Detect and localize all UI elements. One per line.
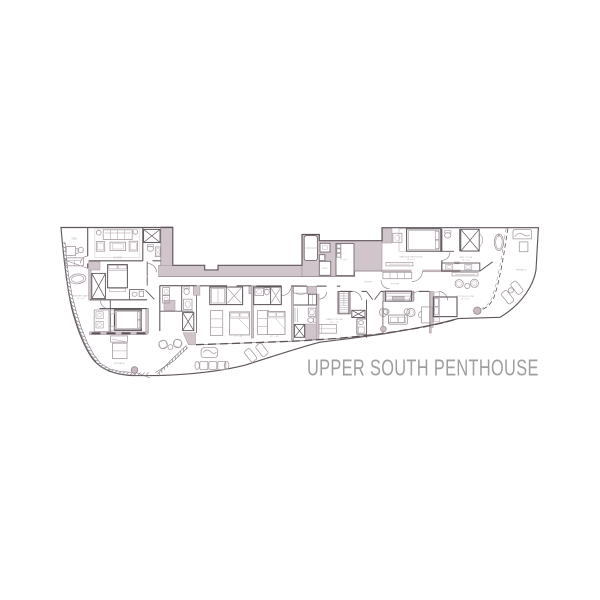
svg-text:DEN: DEN: [72, 238, 78, 241]
svg-text:TERRACE: TERRACE: [113, 362, 125, 365]
svg-text:MASTER BATH: MASTER BATH: [73, 295, 90, 298]
svg-text:LIVING: LIVING: [113, 256, 122, 259]
svg-text:KIT: KIT: [343, 260, 347, 262]
svg-text:UPPER SOUTH PENTHOUSE: UPPER SOUTH PENTHOUSE: [307, 356, 539, 381]
svg-text:12' x 13': 12' x 13': [234, 336, 244, 338]
svg-text:12' x 11': 12' x 11': [461, 299, 470, 301]
svg-text:MASTER BEDROOM: MASTER BEDROOM: [400, 256, 423, 259]
svg-text:ENTRY: ENTRY: [364, 282, 373, 284]
svg-text:SRVC: SRVC: [322, 268, 328, 270]
svg-text:16' x 13': 16' x 13': [330, 322, 339, 324]
svg-text:18' x 14': 18' x 14': [407, 259, 416, 261]
svg-text:FOYER: FOYER: [391, 283, 400, 285]
svg-text:FAMILY ROOM: FAMILY ROOM: [326, 318, 343, 321]
svg-text:12' x 10': 12' x 10': [77, 298, 86, 300]
svg-text:TERRACE: TERRACE: [515, 268, 527, 271]
svg-text:14' x 10': 14' x 10': [462, 259, 471, 261]
svg-text:12' x 13': 12' x 13': [270, 336, 280, 338]
